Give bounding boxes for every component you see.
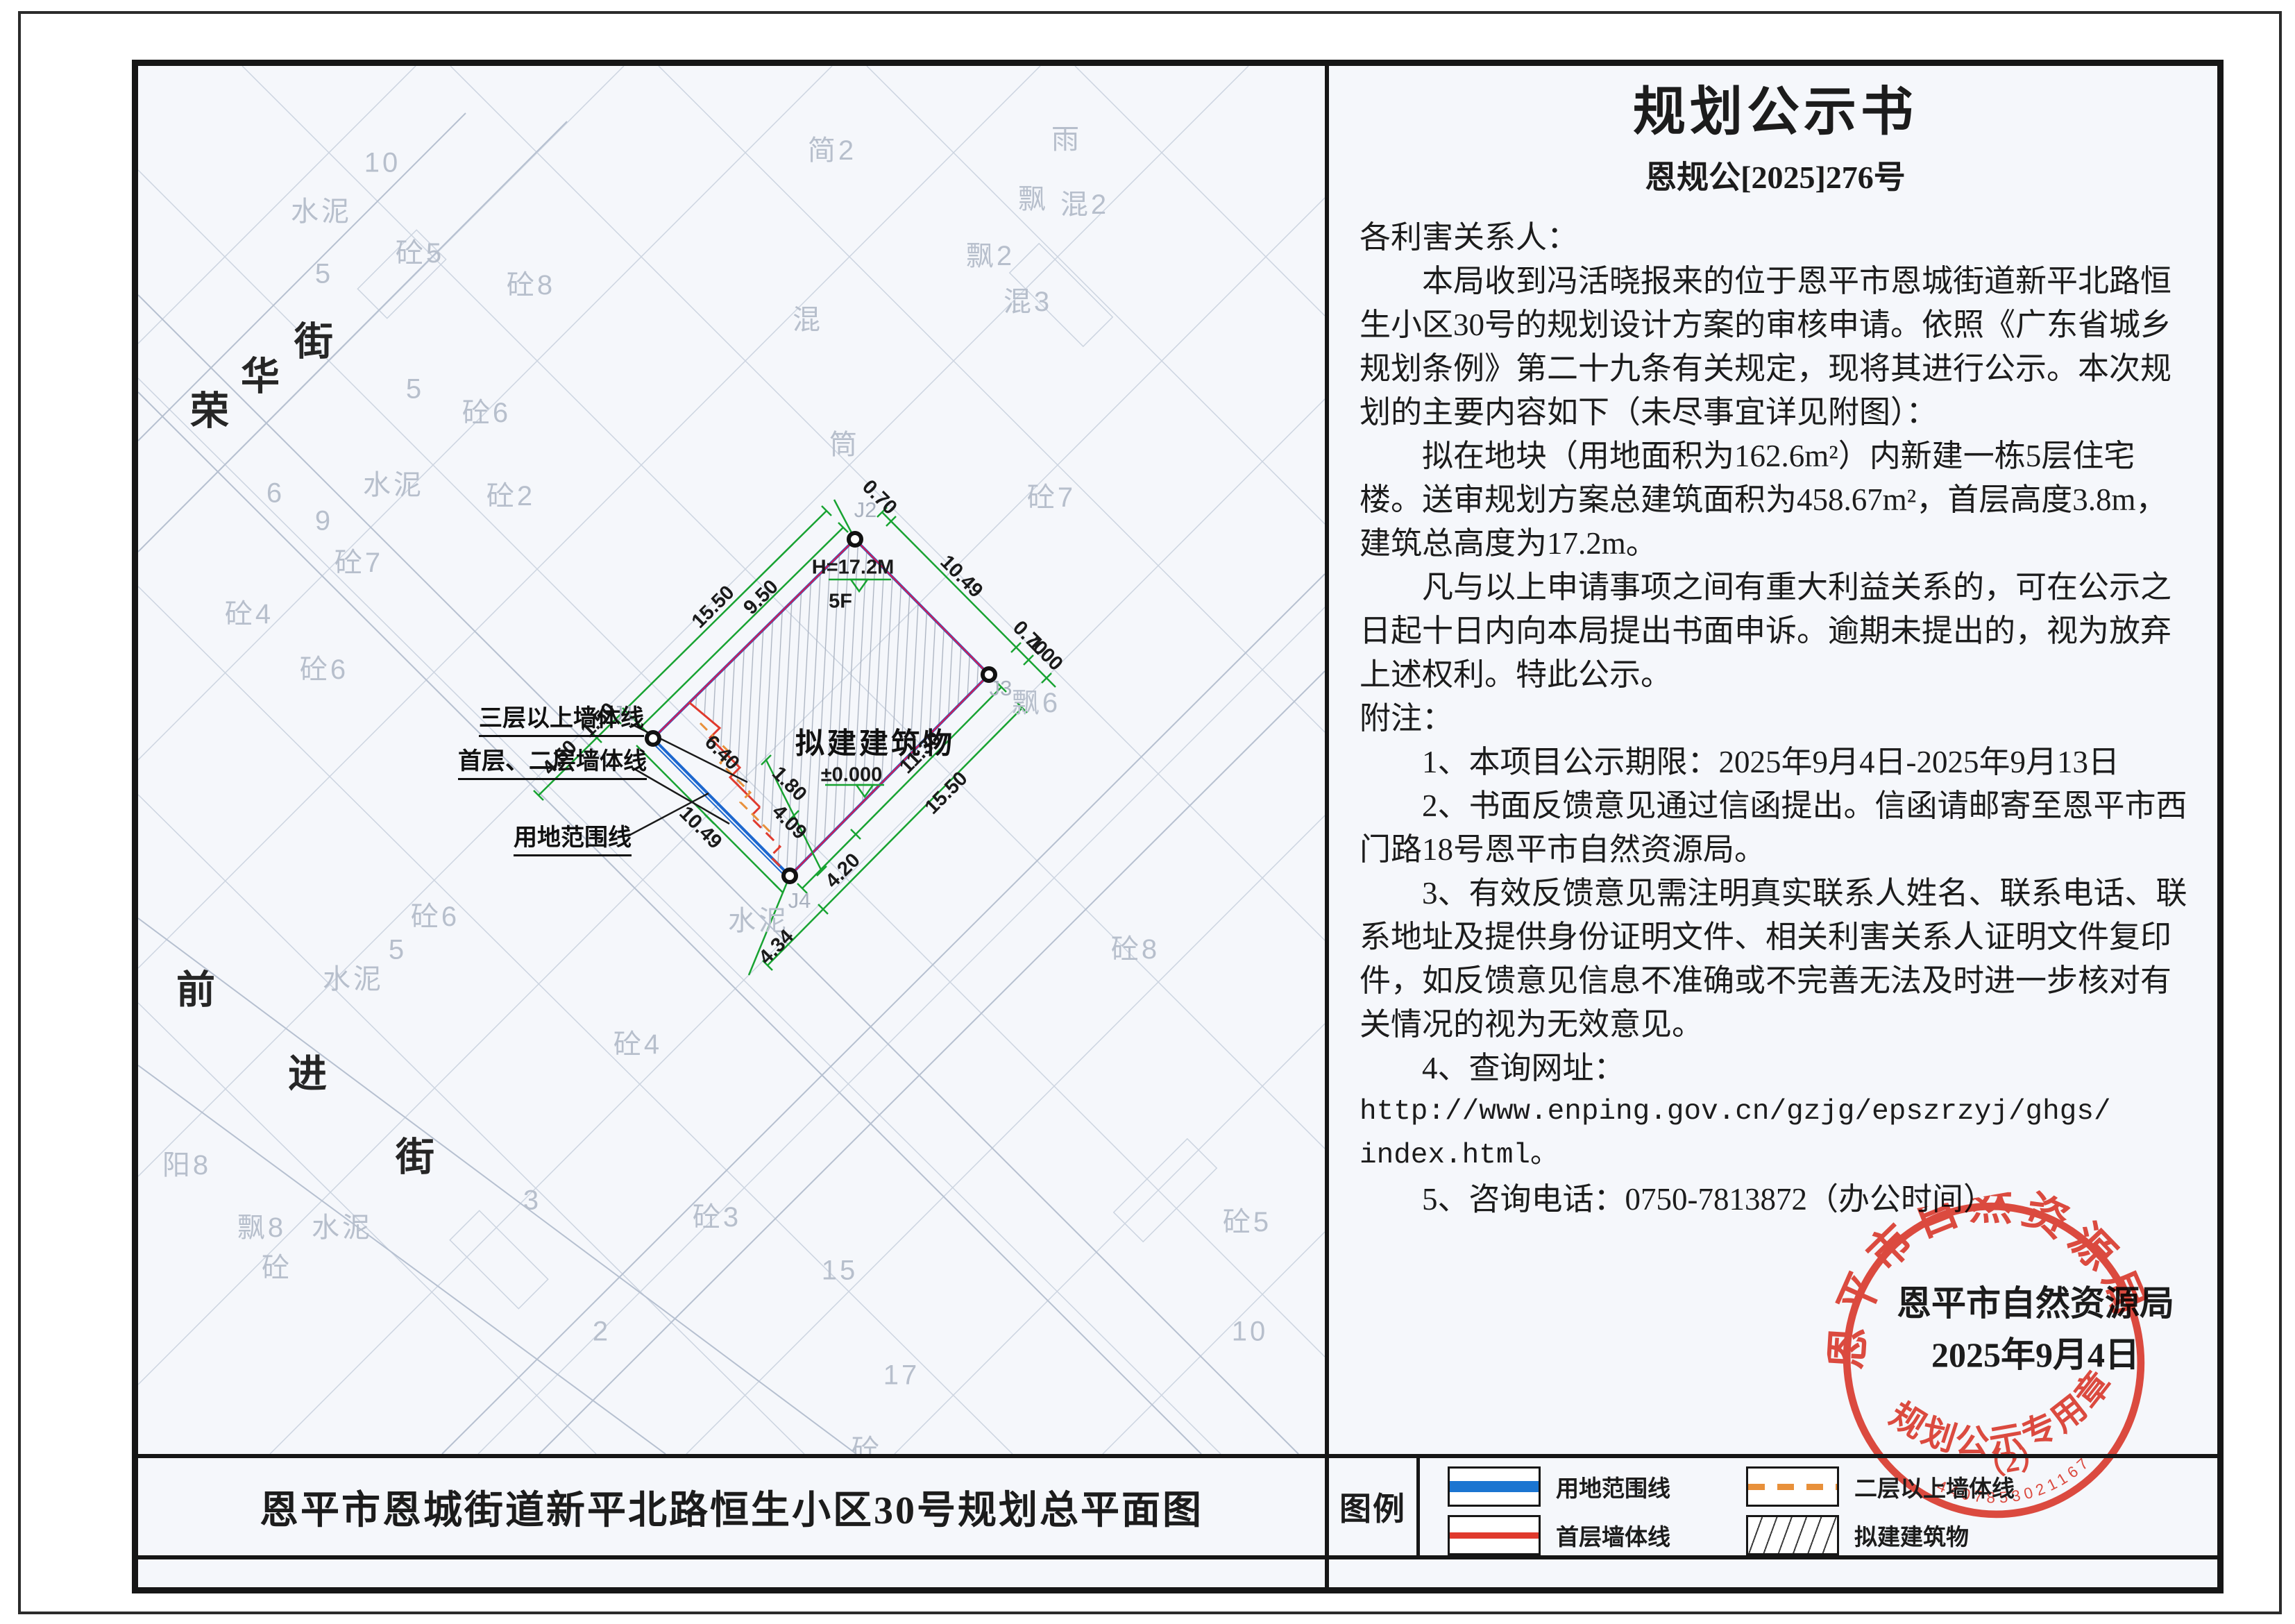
parcel-label: 水泥 [291, 189, 352, 229]
notice-paragraph: 凡与以上申请事项之间有重大利益关系的，可在公示之日起十日内向本局提出书面申诉。逾… [1360, 566, 2191, 697]
corner-point-label: J3 [990, 676, 1013, 701]
parcel-label: 砼7 [1027, 475, 1076, 515]
parcel-label: 砼3 [693, 1194, 741, 1235]
legend-item-label: 二层以上墙体线 [1854, 1470, 2015, 1503]
notice-paragraph: 1、本项目公示期限：2025年9月4日-2025年9月13日 [1360, 741, 2191, 784]
parcel-label: 9 [315, 506, 333, 537]
parcel-label: 6 [266, 478, 285, 509]
notice-body: 各利害关系人：本局收到冯活晓报来的位于恩平市恩城街道新平北路恒生小区30号的规划… [1360, 216, 2191, 1221]
parcel-label: 水泥 [363, 462, 424, 502]
wall-line-annotation: 三层以上墙体线 [479, 699, 644, 737]
legend-item-label: 用地范围线 [1556, 1470, 1670, 1503]
notice-title: 规划公示书 [1360, 69, 2191, 145]
document-frame: 水泥10砼55混简2雨飘混2飘2混3筒砼8砼7飘65砼6砼2水泥69砼7砼4砼6… [132, 60, 2224, 1593]
street-name-char: 进 [288, 1043, 327, 1099]
dimension-label: ±0.000 [821, 764, 883, 787]
notice-doc-number: 恩规公[2025]276号 [1360, 152, 2191, 198]
parcel-label: 飘8 [237, 1205, 286, 1245]
site-plan-map: 水泥10砼55混简2雨飘混2飘2混3筒砼8砼7飘65砼6砼2水泥69砼7砼4砼6… [138, 66, 1325, 1454]
notice-paragraph: 拟在地块（用地面积为162.6m²）内新建一栋5层住宅楼。送审规划方案总建筑面积… [1360, 434, 2191, 566]
parcel-label: 10 [364, 148, 401, 179]
parcel-label: 砼2 [486, 473, 535, 514]
parcel-label: 砼6 [300, 647, 348, 687]
legend-swatch [1746, 1515, 1839, 1555]
parcel-label: 5 [315, 259, 333, 290]
notice-paragraph: http://www.enping.gov.cn/gzjg/epszrzyj/g… [1360, 1090, 2191, 1134]
parcel-label: 砼7 [334, 540, 383, 580]
street-name-char: 街 [294, 311, 333, 367]
parcel-label: 砼 [262, 1245, 292, 1285]
legend: 图例 用地范围线 二层以上墙体线 首层墙体线 拟建建筑物 [1329, 1454, 2217, 1559]
plan-caption: 恩平市恩城街道新平北路恒生小区30号规划总平面图 [260, 1479, 1203, 1535]
parcel-label: 筒 [829, 422, 860, 462]
parcel-label: 水泥 [323, 956, 384, 997]
parcel-label: 混2 [1060, 182, 1109, 222]
parcel-label: 15 [822, 1255, 858, 1287]
parcel-label: 阳8 [162, 1142, 211, 1183]
dimension-label: 5F [829, 591, 852, 614]
parcel-label: 砼5 [1223, 1199, 1271, 1240]
notice-paragraph: index.html。 [1360, 1134, 2191, 1178]
legend-swatch [1448, 1515, 1541, 1555]
notice-panel: 规划公示书 恩规公[2025]276号 各利害关系人：本局收到冯活晓报来的位于恩… [1329, 66, 2217, 1454]
parcel-label: 17 [883, 1360, 920, 1392]
notice-paragraph: 3、有效反馈意见需注明真实联系人姓名、联系电话、联系地址及提供身份证明文件、相关… [1360, 872, 2191, 1047]
legend-items: 用地范围线 二层以上墙体线 首层墙体线 拟建建筑物 [1420, 1458, 2217, 1555]
parcel-label: 飘2 [966, 233, 1015, 273]
notice-paragraph: 2、书面反馈意见通过信函提出。信函请邮寄至恩平市西门路18号恩平市自然资源局。 [1360, 784, 2191, 872]
street-name-char: 前 [176, 959, 215, 1015]
notice-paragraph: 本局收到冯活晓报来的位于恩平市恩城街道新平北路恒生小区30号的规划设计方案的审核… [1360, 260, 2191, 434]
parcel-label: 雨 [1051, 117, 1082, 157]
parcel-label: 砼8 [1111, 927, 1160, 967]
parcel-label: 飘6 [1012, 680, 1060, 720]
street-name-char: 华 [241, 346, 280, 402]
notice-paragraph: 各利害关系人： [1360, 216, 2191, 260]
parcel-label: 混 [793, 297, 823, 337]
legend-item: 拟建建筑物 [1746, 1515, 1969, 1555]
parcel-label: 砼5 [396, 230, 444, 271]
legend-swatch [1448, 1466, 1541, 1507]
parcel-label: 简2 [808, 128, 856, 168]
parcel-label: 3 [523, 1185, 541, 1217]
legend-item: 用地范围线 [1448, 1466, 1670, 1507]
parcel-label: 砼 [852, 1427, 882, 1454]
corner-point-label: J2 [854, 498, 877, 523]
legend-item: 首层墙体线 [1448, 1515, 1670, 1555]
wall-line-annotation: 用地范围线 [514, 818, 632, 856]
notice-paragraph: 附注： [1360, 697, 2191, 741]
street-name-char: 街 [396, 1126, 434, 1183]
parcel-label: 水泥 [312, 1205, 373, 1245]
proposed-building-label: 拟建建筑物 [795, 720, 955, 763]
legend-item-label: 首层墙体线 [1556, 1519, 1670, 1552]
corner-point-label: J4 [788, 888, 811, 913]
legend-title: 图例 [1329, 1458, 1420, 1555]
parcel-label: 10 [1232, 1317, 1269, 1348]
legend-item-label: 拟建建筑物 [1854, 1519, 1969, 1552]
parcel-label: 砼6 [462, 390, 511, 430]
wall-line-annotation: 首层、二层墙体线 [458, 742, 647, 780]
parcel-label: 飘 [1018, 176, 1049, 217]
parcel-label: 5 [406, 374, 424, 405]
notice-paragraph: 4、查询网址： [1360, 1047, 2191, 1090]
parcel-label: 砼4 [225, 591, 273, 632]
parcel-label: 砼6 [411, 894, 459, 934]
scanned-planning-notice-page: 水泥10砼55混简2雨飘混2飘2混3筒砼8砼7飘65砼6砼2水泥69砼7砼4砼6… [0, 0, 2295, 1624]
dimension-label: H=17.2M [812, 557, 894, 580]
parcel-label: 砼4 [613, 1022, 662, 1062]
street-name-char: 荣 [190, 380, 229, 437]
plan-caption-bar: 恩平市恩城街道新平北路恒生小区30号规划总平面图 [138, 1454, 1325, 1559]
legend-swatch [1746, 1466, 1839, 1507]
legend-item: 二层以上墙体线 [1746, 1466, 2015, 1507]
parcel-label: 混3 [1003, 279, 1052, 319]
parcel-label: 2 [593, 1317, 611, 1348]
parcel-label: 砼8 [507, 262, 555, 303]
parcel-label: 5 [389, 935, 407, 966]
